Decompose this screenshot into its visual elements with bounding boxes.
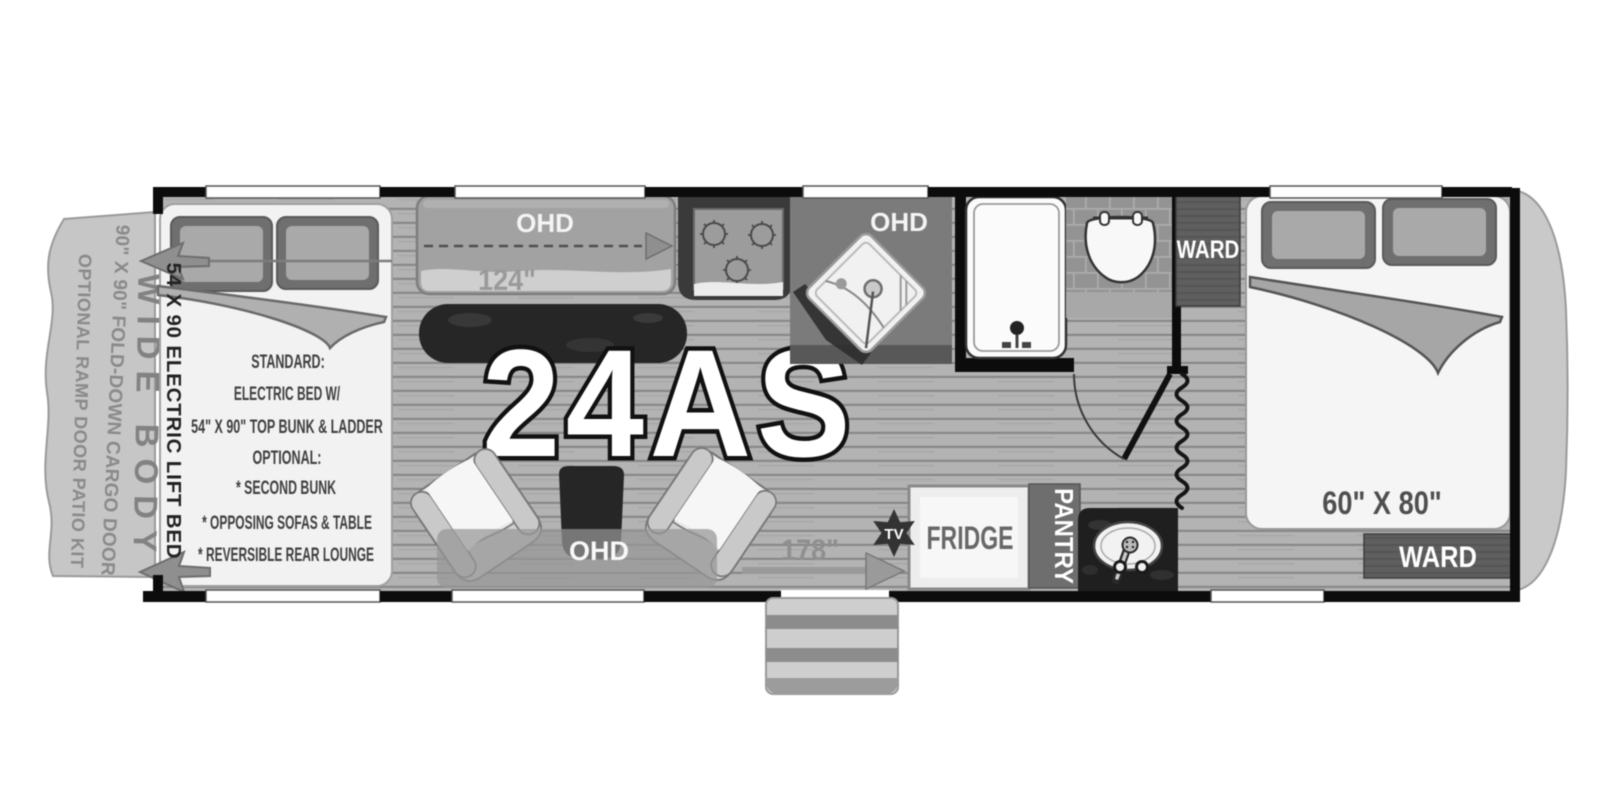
svg-text:60" X 80": 60" X 80": [1322, 486, 1442, 522]
svg-text:OHD: OHD: [569, 536, 629, 566]
svg-text:TV: TV: [884, 526, 903, 543]
svg-text:WARD: WARD: [1177, 235, 1240, 263]
svg-text:* REVERSIBLE REAR LOUNGE: * REVERSIBLE REAR LOUNGE: [198, 545, 374, 565]
svg-text:FRIDGE: FRIDGE: [926, 520, 1013, 556]
svg-text:OPTIONAL:: OPTIONAL:: [253, 447, 322, 468]
svg-text:OHD: OHD: [516, 208, 574, 238]
svg-text:OHD: OHD: [870, 207, 928, 237]
svg-text:54" X 90" TOP BUNK & LADDER: 54" X 90" TOP BUNK & LADDER: [191, 416, 383, 437]
svg-text:* SECOND BUNK: * SECOND BUNK: [236, 477, 336, 498]
svg-text:ELECTRIC BED W/: ELECTRIC BED W/: [234, 384, 341, 404]
svg-text:STANDARD:: STANDARD:: [251, 351, 325, 372]
svg-text:WARD: WARD: [1399, 540, 1477, 573]
svg-text:124": 124": [478, 264, 536, 298]
svg-text:* OPPOSING SOFAS & TABLE: * OPPOSING SOFAS & TABLE: [202, 513, 372, 533]
svg-text:178": 178": [781, 534, 839, 568]
svg-text:PANTRY: PANTRY: [1049, 488, 1078, 584]
svg-text:54 X 90 ELECTRIC LIFT BED: 54 X 90 ELECTRIC LIFT BED: [162, 263, 185, 560]
